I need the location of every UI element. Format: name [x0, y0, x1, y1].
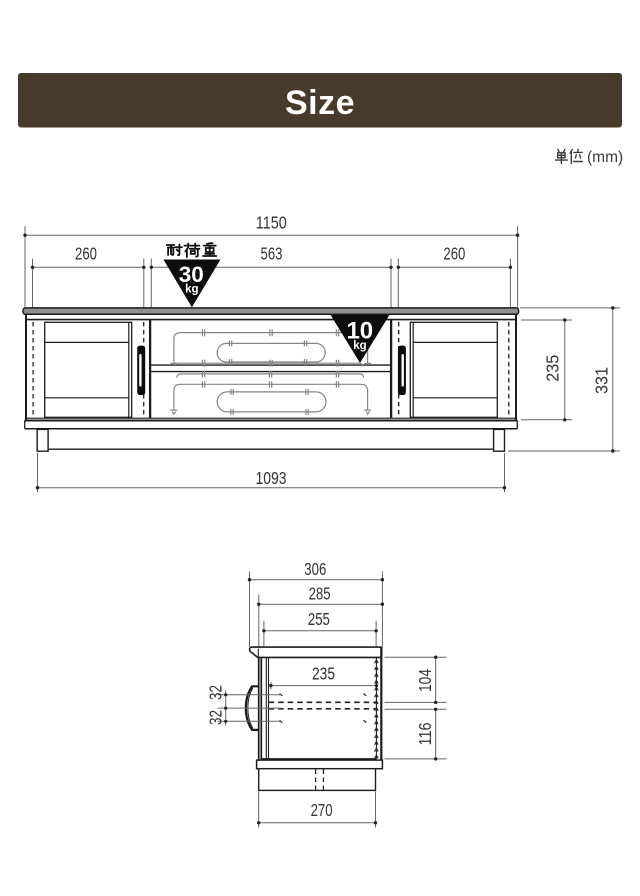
svg-text:563: 563 — [261, 244, 283, 264]
svg-text:104: 104 — [415, 669, 435, 692]
svg-text:(mm): (mm) — [587, 149, 623, 166]
svg-text:255: 255 — [308, 609, 330, 629]
svg-text:kg: kg — [353, 340, 366, 352]
svg-text:270: 270 — [311, 800, 333, 820]
svg-text:285: 285 — [309, 584, 331, 604]
svg-text:116: 116 — [415, 723, 435, 746]
svg-text:32: 32 — [206, 710, 226, 725]
svg-text:235: 235 — [543, 355, 563, 382]
svg-text:kg: kg — [185, 284, 198, 296]
svg-text:1093: 1093 — [256, 468, 287, 488]
svg-text:32: 32 — [206, 685, 226, 700]
svg-text:331: 331 — [591, 367, 611, 394]
svg-text:235: 235 — [312, 664, 335, 684]
svg-text:306: 306 — [304, 559, 326, 579]
svg-text:260: 260 — [443, 244, 465, 264]
svg-text:260: 260 — [75, 244, 97, 264]
svg-text:1150: 1150 — [256, 213, 287, 233]
svg-text:Size: Size — [285, 84, 355, 122]
